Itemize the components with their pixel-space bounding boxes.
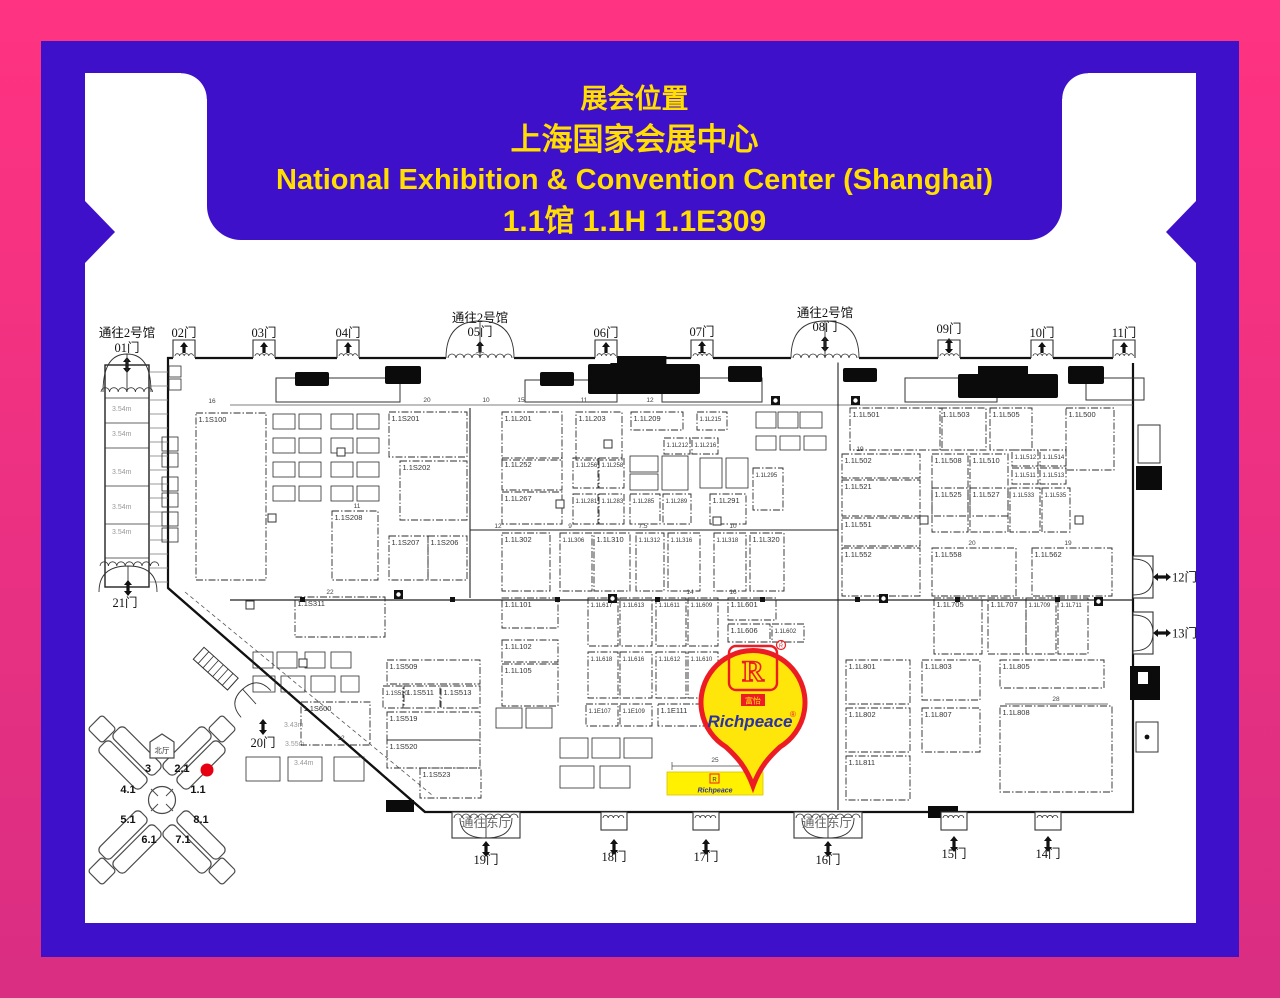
- wheelchair-icon: [771, 396, 780, 405]
- svg-text:1.1L101: 1.1L101: [505, 600, 532, 609]
- svg-text:22: 22: [326, 589, 334, 596]
- svg-text:1.1L803: 1.1L803: [925, 662, 952, 671]
- booth-1.1L215: 1.1L215: [697, 412, 727, 430]
- booth-1.1L618: 1.1L618: [588, 652, 618, 698]
- svg-text:1.1L267: 1.1L267: [505, 494, 532, 503]
- svg-text:1.1L805: 1.1L805: [1003, 662, 1030, 671]
- booth-1.1E107: 1.1E107: [586, 704, 618, 726]
- svg-text:1.1L511: 1.1L511: [1015, 473, 1037, 479]
- svg-text:1.1L312: 1.1L312: [639, 538, 661, 544]
- svg-text:1.1S206: 1.1S206: [431, 538, 459, 547]
- svg-text:北厅: 北厅: [155, 746, 170, 755]
- svg-text:7.5: 7.5: [638, 523, 647, 530]
- furniture-icon: [540, 372, 574, 386]
- svg-text:1.1L302: 1.1L302: [505, 535, 532, 544]
- svg-text:1.1L203: 1.1L203: [579, 414, 606, 423]
- svg-text:12: 12: [646, 397, 654, 404]
- svg-text:1.1L256: 1.1L256: [576, 463, 598, 469]
- svg-text:25: 25: [711, 757, 719, 764]
- booth-1.1L525: 1.1L525: [932, 488, 968, 532]
- svg-text:1.1L316: 1.1L316: [671, 538, 693, 544]
- gate-07门: 07门: [689, 324, 714, 363]
- svg-text:1.1L610: 1.1L610: [691, 657, 713, 663]
- svg-text:11: 11: [581, 397, 588, 404]
- booth-1.1L502: 1.1L502: [842, 454, 920, 478]
- svg-text:10门: 10门: [1029, 325, 1054, 340]
- svg-text:1.1L711: 1.1L711: [1061, 603, 1083, 609]
- svg-text:1.1L521: 1.1L521: [845, 482, 872, 491]
- banner-corner-left: [181, 73, 207, 99]
- svg-text:1.1L514: 1.1L514: [1043, 455, 1065, 461]
- booth-1.1S100: 1.1S100: [196, 413, 266, 580]
- gate-11门: 11门: [1112, 325, 1137, 363]
- svg-text:1.1L289: 1.1L289: [666, 499, 688, 505]
- svg-text:12: 12: [494, 523, 502, 530]
- booth-1.1L802: 1.1L802: [846, 708, 910, 752]
- booth-1.1L503: 1.1L503: [940, 408, 986, 450]
- booth-1.1L212: 1.1L212: [664, 438, 690, 454]
- booth-1.1L302: 1.1L302: [502, 533, 550, 591]
- booth-1.1L105: 1.1L105: [502, 664, 558, 706]
- svg-text:通往东厅: 通往东厅: [802, 815, 852, 830]
- gate-09门: 09门: [936, 321, 961, 363]
- svg-text:1.1S523: 1.1S523: [423, 770, 451, 779]
- svg-text:1.1L562: 1.1L562: [1035, 550, 1062, 559]
- svg-text:1.1L613: 1.1L613: [623, 603, 645, 609]
- svg-text:09门: 09门: [936, 321, 961, 336]
- svg-text:14门: 14门: [1035, 846, 1060, 861]
- booth-1.1L521: 1.1L521: [842, 480, 920, 516]
- booth-1.1L709: 1.1L709: [1026, 598, 1056, 654]
- svg-text:1.1L552: 1.1L552: [845, 550, 872, 559]
- furniture-icon: [385, 366, 421, 384]
- overview-minimap: 北厅2.11.134.15.16.18.17.1: [88, 715, 236, 885]
- svg-text:Richpeace: Richpeace: [697, 788, 732, 795]
- svg-text:8.1: 8.1: [193, 814, 208, 826]
- svg-text:14: 14: [686, 589, 694, 596]
- gate-18门: 18门: [601, 812, 627, 864]
- svg-text:1.1S202: 1.1S202: [403, 463, 431, 472]
- booth-1.1L609: 1.1L609: [688, 598, 718, 646]
- svg-text:15门: 15门: [941, 846, 966, 861]
- svg-text:1.1L505: 1.1L505: [993, 410, 1020, 419]
- booth-1.1L203: 1.1L203: [576, 412, 622, 460]
- svg-text:1.1L502: 1.1L502: [845, 456, 872, 465]
- wheelchair-icon: [394, 590, 403, 599]
- gate-21门: 21门: [99, 562, 159, 610]
- banner-line-booth: 1.1馆 1.1H 1.1E309: [503, 201, 767, 242]
- booth-1.1L616: 1.1L616: [620, 652, 652, 698]
- svg-text:16: 16: [729, 589, 737, 596]
- pink-border-frame: 3.54m3.54m3.54m3.54m3.54m3.43m3.55m3.44m…: [0, 0, 1280, 998]
- booth-1.1L283: 1.1L283: [599, 494, 624, 524]
- banner-line-cn-1: 展会位置: [581, 79, 689, 119]
- svg-text:1.1L612: 1.1L612: [659, 657, 681, 663]
- svg-text:1.1L527: 1.1L527: [973, 490, 1000, 499]
- banner-line-cn-2: 上海国家会展中心: [511, 119, 759, 160]
- svg-text:1.1S207: 1.1S207: [392, 538, 420, 547]
- svg-text:15: 15: [517, 397, 525, 404]
- svg-text:1.1L525: 1.1L525: [935, 490, 962, 499]
- svg-text:Richpeace: Richpeace: [707, 712, 792, 731]
- svg-text:3.55m: 3.55m: [285, 741, 305, 748]
- svg-text:R: R: [742, 655, 764, 688]
- booth-1.1L617: 1.1L617: [588, 598, 618, 646]
- svg-text:1.1L310: 1.1L310: [597, 535, 624, 544]
- svg-text:1.1L535: 1.1L535: [1045, 493, 1067, 499]
- svg-text:06门: 06门: [593, 325, 618, 340]
- booth-1.1L612: 1.1L612: [656, 652, 686, 698]
- gate-15门: 15门: [941, 812, 967, 861]
- booth-1.1L101: 1.1L101: [502, 598, 558, 628]
- svg-text:1.1L503: 1.1L503: [943, 410, 970, 419]
- floor-markers: [246, 396, 1103, 667]
- svg-text:3.54m: 3.54m: [112, 504, 132, 511]
- svg-text:1.1L215: 1.1L215: [700, 417, 722, 423]
- svg-text:1.1L611: 1.1L611: [659, 603, 681, 609]
- booth-1.1L258: 1.1L258: [599, 458, 624, 488]
- svg-text:1.1L320: 1.1L320: [753, 535, 780, 544]
- booth-1.1L209: 1.1L209: [631, 412, 683, 430]
- booth-1.1S202: 1.1S202: [400, 461, 467, 520]
- svg-text:12门: 12门: [1172, 570, 1196, 585]
- svg-text:3.44m: 3.44m: [294, 760, 314, 767]
- labeled-booths: 1.1S1001.1S2011.1S2021.1S2081.1S2071.1S2…: [196, 408, 1114, 800]
- svg-text:1.1L807: 1.1L807: [925, 710, 952, 719]
- booth-1.1S206: 1.1S206: [428, 536, 467, 580]
- booth-1.1L310: 1.1L310: [594, 533, 630, 591]
- svg-text:1.1S519: 1.1S519: [390, 714, 418, 723]
- aisle-lines: [230, 360, 1133, 810]
- svg-text:1.1L617: 1.1L617: [591, 603, 613, 609]
- svg-text:1.1L508: 1.1L508: [935, 456, 962, 465]
- booth-1.1L533: 1.1L533: [1010, 488, 1040, 532]
- svg-text:3: 3: [145, 763, 151, 775]
- gate-05门: 通往2号馆05门: [446, 310, 514, 363]
- svg-text:18门: 18门: [601, 849, 626, 864]
- gate-10门: 10门: [1029, 325, 1054, 363]
- svg-text:1.1L295: 1.1L295: [756, 473, 778, 479]
- svg-text:19门: 19门: [473, 852, 498, 867]
- svg-text:12: 12: [337, 735, 345, 742]
- booth-1.1L808: 1.1L808: [1000, 706, 1112, 792]
- svg-text:1.1S513: 1.1S513: [444, 688, 472, 697]
- booth-1.1L295: 1.1L295: [753, 468, 783, 510]
- svg-text:1.1S510: 1.1S510: [386, 691, 409, 697]
- booth-1.1L320: 1.1L320: [750, 533, 784, 591]
- svg-text:1.1L258: 1.1L258: [602, 463, 624, 469]
- svg-text:1.1L602: 1.1L602: [775, 629, 797, 635]
- booth-1.1L551: 1.1L551: [842, 518, 920, 546]
- booth-1.1S311: 1.1S311: [295, 597, 385, 637]
- svg-text:11: 11: [354, 503, 361, 510]
- booth-1.1S511: 1.1S511: [404, 686, 440, 708]
- svg-text:1.1S509: 1.1S509: [390, 662, 418, 671]
- gate-06门: 06门: [593, 325, 618, 363]
- booth-1.1S510: 1.1S510: [383, 686, 409, 708]
- gate-17门: 17门: [693, 812, 719, 864]
- booth-1.1L508: 1.1L508: [932, 454, 968, 516]
- gate-14门: 14门: [1035, 812, 1061, 861]
- booth-1.1L102: 1.1L102: [502, 640, 558, 662]
- svg-text:1.1L513: 1.1L513: [1043, 473, 1065, 479]
- booth-1.1S207: 1.1S207: [389, 536, 428, 580]
- svg-text:1.1L609: 1.1L609: [691, 603, 713, 609]
- svg-text:5.1: 5.1: [120, 814, 135, 826]
- svg-text:17门: 17门: [693, 849, 718, 864]
- svg-text:1.1E107: 1.1E107: [589, 709, 612, 715]
- wheelchair-icon: [1094, 597, 1103, 606]
- svg-text:3.54m: 3.54m: [112, 406, 132, 413]
- svg-text:1.1L601: 1.1L601: [731, 600, 758, 609]
- svg-text:1.1L105: 1.1L105: [505, 666, 532, 675]
- svg-text:28: 28: [1052, 696, 1060, 703]
- svg-text:1.1L283: 1.1L283: [602, 499, 624, 505]
- svg-text:1.1L558: 1.1L558: [935, 550, 962, 559]
- svg-text:11门: 11门: [1112, 325, 1137, 340]
- svg-text:通往2号馆: 通往2号馆: [99, 325, 155, 340]
- svg-text:4.1: 4.1: [120, 784, 135, 796]
- svg-text:1.1S201: 1.1S201: [392, 414, 420, 423]
- exhibition-floorplan: 3.54m3.54m3.54m3.54m3.54m3.43m3.55m3.44m…: [85, 250, 1196, 923]
- current-hall-dot: [201, 764, 214, 777]
- svg-text:1.1L510: 1.1L510: [973, 456, 1000, 465]
- svg-text:1.1L216: 1.1L216: [695, 443, 717, 449]
- svg-text:3.54m: 3.54m: [112, 529, 132, 536]
- svg-text:R: R: [779, 644, 783, 650]
- svg-text:10: 10: [729, 523, 737, 530]
- svg-text:1.1L201: 1.1L201: [505, 414, 532, 423]
- svg-text:1.1: 1.1: [190, 784, 205, 796]
- booth-1.1L289: 1.1L289: [663, 494, 691, 524]
- booth-blocks: [162, 366, 1144, 788]
- booth-1.1L613: 1.1L613: [620, 598, 652, 646]
- booth-1.1S509: 1.1S509: [387, 660, 480, 684]
- booth-1.1L558: 1.1L558: [932, 548, 1016, 596]
- svg-text:19: 19: [1064, 540, 1072, 547]
- booth-1.1E109: 1.1E109: [620, 704, 652, 726]
- svg-text:1.1L618: 1.1L618: [591, 657, 613, 663]
- booth-1.1L512: 1.1L512: [1012, 450, 1038, 466]
- svg-text:1.1L252: 1.1L252: [505, 460, 532, 469]
- svg-text:1.1L811: 1.1L811: [849, 758, 876, 767]
- svg-text:1.1L606: 1.1L606: [731, 626, 758, 635]
- svg-text:R: R: [712, 778, 717, 784]
- booth-1.1L281: 1.1L281: [573, 494, 598, 524]
- svg-text:通往东厅: 通往东厅: [461, 815, 511, 830]
- svg-text:21门: 21门: [112, 595, 137, 610]
- booth-1.1L807: 1.1L807: [922, 708, 980, 752]
- booth-1.1L611: 1.1L611: [656, 598, 686, 646]
- svg-text:1.1L801: 1.1L801: [849, 662, 876, 671]
- booth-1.1S520: 1.1S520: [387, 740, 480, 768]
- booth-1.1L803: 1.1L803: [922, 660, 980, 700]
- svg-text:1.1L533: 1.1L533: [1013, 493, 1035, 499]
- gate-12门: 12门: [1133, 556, 1196, 598]
- banner-line-en: National Exhibition & Convention Center …: [276, 160, 993, 201]
- booth-1.1S201: 1.1S201: [389, 412, 467, 457]
- booth-1.1S523: 1.1S523: [420, 768, 481, 798]
- svg-text:1.1L281: 1.1L281: [576, 499, 598, 505]
- booth-1.1L318: 1.1L318: [714, 533, 746, 591]
- svg-text:1.1L551: 1.1L551: [845, 520, 872, 529]
- booth-1.1L552: 1.1L552: [842, 548, 920, 596]
- svg-text:3.54m: 3.54m: [112, 431, 132, 438]
- svg-text:04门: 04门: [335, 325, 360, 340]
- svg-text:3.54m: 3.54m: [112, 469, 132, 476]
- wheelchair-icon: [851, 396, 860, 405]
- booth-1.1L527: 1.1L527: [970, 488, 1008, 532]
- svg-text:1.1L808: 1.1L808: [1003, 708, 1030, 717]
- booth-1.1L705: 1.1L705: [934, 598, 982, 654]
- svg-text:1.1L285: 1.1L285: [633, 499, 655, 505]
- wheelchair-icon: [879, 594, 888, 603]
- svg-text:6.1: 6.1: [141, 834, 156, 846]
- booth-1.1L606: 1.1L606: [728, 624, 770, 642]
- svg-text:富怡: 富怡: [745, 696, 761, 706]
- booth-1.1L511: 1.1L511: [1012, 468, 1038, 484]
- banner-corner-right: [1062, 73, 1088, 99]
- svg-text:1.1L209: 1.1L209: [634, 414, 661, 423]
- svg-text:通往2号馆: 通往2号馆: [797, 305, 853, 320]
- booth-1.1L500: 1.1L500: [1066, 408, 1114, 470]
- title-banner: 展会位置 上海国家会展中心 National Exhibition & Conv…: [207, 41, 1062, 240]
- svg-text:03门: 03门: [251, 325, 276, 340]
- svg-text:1.1L291: 1.1L291: [713, 496, 740, 505]
- booth-1.1L801: 1.1L801: [846, 660, 910, 704]
- svg-text:1.1L709: 1.1L709: [1029, 603, 1051, 609]
- booth-1.1S208: 1.1S208: [332, 511, 378, 580]
- svg-text:1.1L500: 1.1L500: [1069, 410, 1096, 419]
- gates-right: 12门13门: [1133, 556, 1196, 654]
- gate-03门: 03门: [251, 325, 276, 363]
- svg-text:1.1S600: 1.1S600: [304, 704, 332, 713]
- gate-01门: 通往2号馆01门: [99, 325, 155, 392]
- svg-text:1.1S511: 1.1S511: [407, 688, 434, 697]
- booth-1.1S513: 1.1S513: [441, 686, 480, 708]
- booth-1.1L252: 1.1L252: [502, 458, 562, 490]
- booth-1.1L312: 1.1L312: [636, 533, 664, 591]
- booth-1.1L805: 1.1L805: [1000, 660, 1104, 688]
- booth-1.1L535: 1.1L535: [1042, 488, 1070, 532]
- svg-text:®: ®: [790, 710, 796, 719]
- svg-text:02门: 02门: [171, 325, 196, 340]
- furniture-icon: [843, 368, 877, 382]
- booth-1.1L711: 1.1L711: [1058, 598, 1088, 654]
- booth-1.1L510: 1.1L510: [970, 454, 1008, 516]
- booth-1.1L306: 1.1L306: [560, 533, 592, 591]
- booth-1.1L201: 1.1L201: [502, 412, 562, 460]
- furniture-icon: [1068, 366, 1104, 384]
- svg-text:9: 9: [568, 523, 572, 530]
- booth-1.1L316: 1.1L316: [668, 533, 700, 591]
- wheelchair-icon: [608, 594, 617, 603]
- booth-1.1L562: 1.1L562: [1032, 548, 1112, 596]
- svg-text:1.1L501: 1.1L501: [853, 410, 880, 419]
- svg-text:13门: 13门: [1172, 626, 1196, 641]
- svg-text:1.1L102: 1.1L102: [505, 642, 532, 651]
- svg-text:20: 20: [423, 397, 431, 404]
- booth-1.1L505: 1.1L505: [990, 408, 1032, 450]
- booth-1.1S519: 1.1S519: [387, 712, 480, 740]
- booth-1.1L256: 1.1L256: [573, 458, 598, 488]
- gate-04门: 04门: [335, 325, 360, 363]
- svg-text:1.1L802: 1.1L802: [849, 710, 876, 719]
- gate-08门: 通往2号馆08门: [791, 305, 859, 363]
- svg-text:1.1L512: 1.1L512: [1015, 455, 1037, 461]
- booth-1.1L811: 1.1L811: [846, 756, 910, 800]
- furniture-icon: [958, 366, 1058, 398]
- svg-text:10: 10: [482, 397, 490, 404]
- svg-text:1.1E111: 1.1E111: [661, 706, 688, 715]
- svg-text:1.1S100: 1.1S100: [199, 415, 227, 424]
- furniture-icon: [728, 366, 762, 382]
- booth-1.1S600: 1.1S600: [301, 702, 370, 745]
- svg-text:1.1L707: 1.1L707: [991, 600, 1018, 609]
- gate-13门: 13门: [1133, 612, 1196, 654]
- svg-text:1.1S208: 1.1S208: [335, 513, 363, 522]
- svg-text:16门: 16门: [815, 852, 840, 867]
- svg-text:7.1: 7.1: [175, 834, 190, 846]
- svg-text:1.1L616: 1.1L616: [623, 657, 645, 663]
- richpeace-location-pin: RR富怡Richpeace®: [701, 641, 805, 787]
- svg-text:1.1S520: 1.1S520: [390, 742, 418, 751]
- svg-text:20: 20: [968, 540, 976, 547]
- booth-1.1L216: 1.1L216: [692, 438, 718, 454]
- booth-1.1L601: 1.1L601: [728, 598, 776, 620]
- svg-text:1.1L212: 1.1L212: [667, 443, 689, 449]
- gate-20门: 20门: [228, 676, 276, 750]
- booth-1.1L707: 1.1L707: [988, 598, 1026, 654]
- svg-text:19: 19: [856, 446, 864, 453]
- furniture-icon: [295, 372, 329, 386]
- svg-text:1.1E109: 1.1E109: [623, 709, 646, 715]
- booth-1.1L267: 1.1L267: [502, 492, 562, 524]
- booth-1.1L602: 1.1L602: [772, 624, 804, 642]
- svg-text:1.1L318: 1.1L318: [717, 538, 739, 544]
- gates-bottom: 19门18门17门16门15门14门: [452, 812, 1061, 867]
- booth-1.1L513: 1.1L513: [1040, 468, 1066, 484]
- svg-text:2.1: 2.1: [174, 763, 189, 775]
- booth-1.1L501: 1.1L501: [850, 408, 942, 450]
- svg-text:1.1L306: 1.1L306: [563, 538, 585, 544]
- svg-text:16: 16: [208, 398, 216, 405]
- booth-1.1E111: 1.1E111: [658, 704, 704, 726]
- poster: { "colors":{ "frame_pink_top":"#FF3381",…: [0, 0, 1280, 998]
- gate-02门: 02门: [171, 325, 196, 363]
- svg-text:07门: 07门: [689, 324, 714, 339]
- booth-1.1L514: 1.1L514: [1040, 450, 1066, 466]
- svg-text:20门: 20门: [250, 735, 275, 750]
- booth-1.1L285: 1.1L285: [630, 494, 660, 524]
- svg-text:01门: 01门: [114, 340, 139, 355]
